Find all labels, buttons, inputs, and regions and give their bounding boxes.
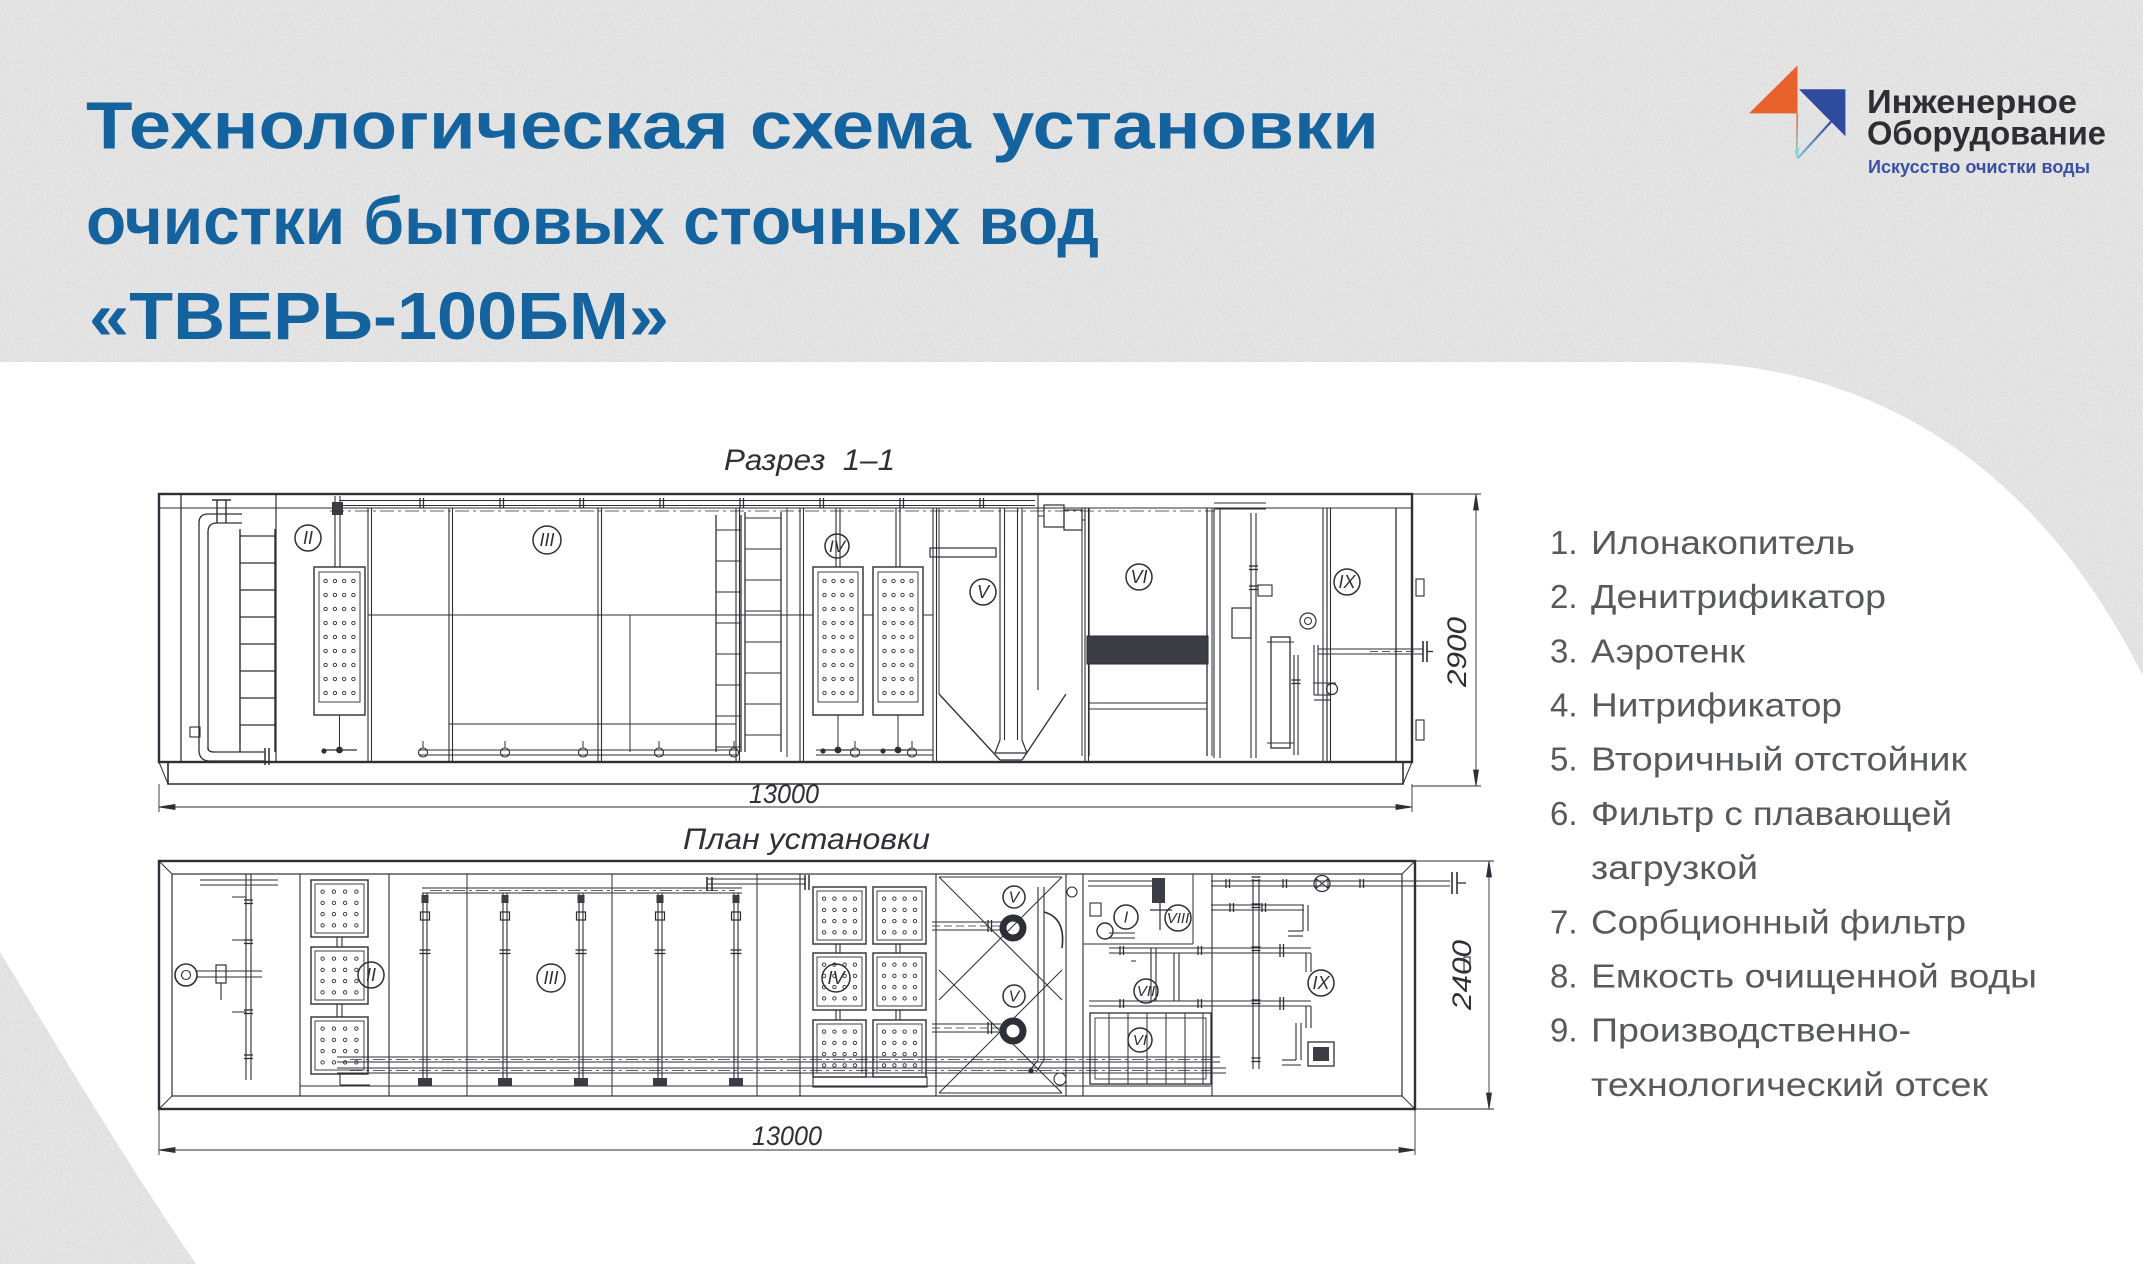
svg-text:Илонакопитель: Илонакопитель <box>1591 524 1855 561</box>
svg-text:загрузкой: загрузкой <box>1591 849 1758 886</box>
svg-text:7.: 7. <box>1550 903 1578 940</box>
svg-text:8.: 8. <box>1550 958 1578 995</box>
svg-text:III: III <box>543 968 558 988</box>
svg-text:Сорбционный фильтр: Сорбционный фильтр <box>1591 903 1966 940</box>
svg-text:Оборудование: Оборудование <box>1867 115 2106 152</box>
svg-text:VIII: VIII <box>1167 910 1190 927</box>
svg-text:2.: 2. <box>1550 578 1578 615</box>
svg-text:2900: 2900 <box>1442 617 1472 688</box>
svg-text:Технологическая схема установк: Технологическая схема установки <box>86 89 1379 164</box>
svg-text:Искусство очистки воды: Искусство очистки воды <box>1868 156 2090 177</box>
svg-text:технологический отсек: технологический отсек <box>1591 1066 1989 1103</box>
svg-text:5.: 5. <box>1550 741 1578 778</box>
svg-text:«ТВЕРЬ-100БМ»: «ТВЕРЬ-100БМ» <box>89 279 669 354</box>
svg-text:VI: VI <box>1133 1032 1147 1049</box>
svg-text:Нитрификатор: Нитрификатор <box>1591 687 1842 724</box>
svg-text:2400: 2400 <box>1447 940 1477 1011</box>
svg-text:4.: 4. <box>1550 687 1578 724</box>
svg-text:IV: IV <box>829 537 847 556</box>
svg-text:План установки: План установки <box>683 823 930 856</box>
svg-text:I: I <box>1124 909 1129 926</box>
svg-text:13000: 13000 <box>752 1121 822 1151</box>
svg-text:Аэротенк: Аэротенк <box>1591 632 1746 669</box>
svg-text:V: V <box>1009 889 1021 906</box>
svg-text:1.: 1. <box>1550 524 1578 561</box>
svg-text:Емкость очищенной воды: Емкость очищенной воды <box>1591 958 2037 995</box>
svg-text:VI: VI <box>1130 567 1147 587</box>
svg-text:9.: 9. <box>1550 1012 1578 1049</box>
svg-text:III: III <box>539 530 554 550</box>
svg-text:13000: 13000 <box>749 779 819 809</box>
svg-text:очистки бытовых сточных вод: очистки бытовых сточных вод <box>86 184 1099 259</box>
svg-text:Разрез 1–1: Разрез 1–1 <box>724 444 895 477</box>
svg-text:Фильтр с плавающей: Фильтр с плавающей <box>1591 795 1952 832</box>
svg-text:V: V <box>977 582 991 602</box>
svg-text:IV: IV <box>827 968 846 988</box>
svg-text:V: V <box>1009 988 1021 1005</box>
svg-text:6.: 6. <box>1550 795 1578 832</box>
svg-text:IX: IX <box>1338 572 1356 592</box>
svg-text:IX: IX <box>1312 973 1330 993</box>
svg-text:Денитрификатор: Денитрификатор <box>1591 578 1886 615</box>
svg-text:Производственно-: Производственно- <box>1591 1012 1911 1049</box>
svg-text:II: II <box>303 528 313 548</box>
svg-text:Вторичный отстойник: Вторичный отстойник <box>1591 741 1968 778</box>
svg-text:3.: 3. <box>1550 632 1578 669</box>
svg-text:VII: VII <box>1137 983 1155 1000</box>
